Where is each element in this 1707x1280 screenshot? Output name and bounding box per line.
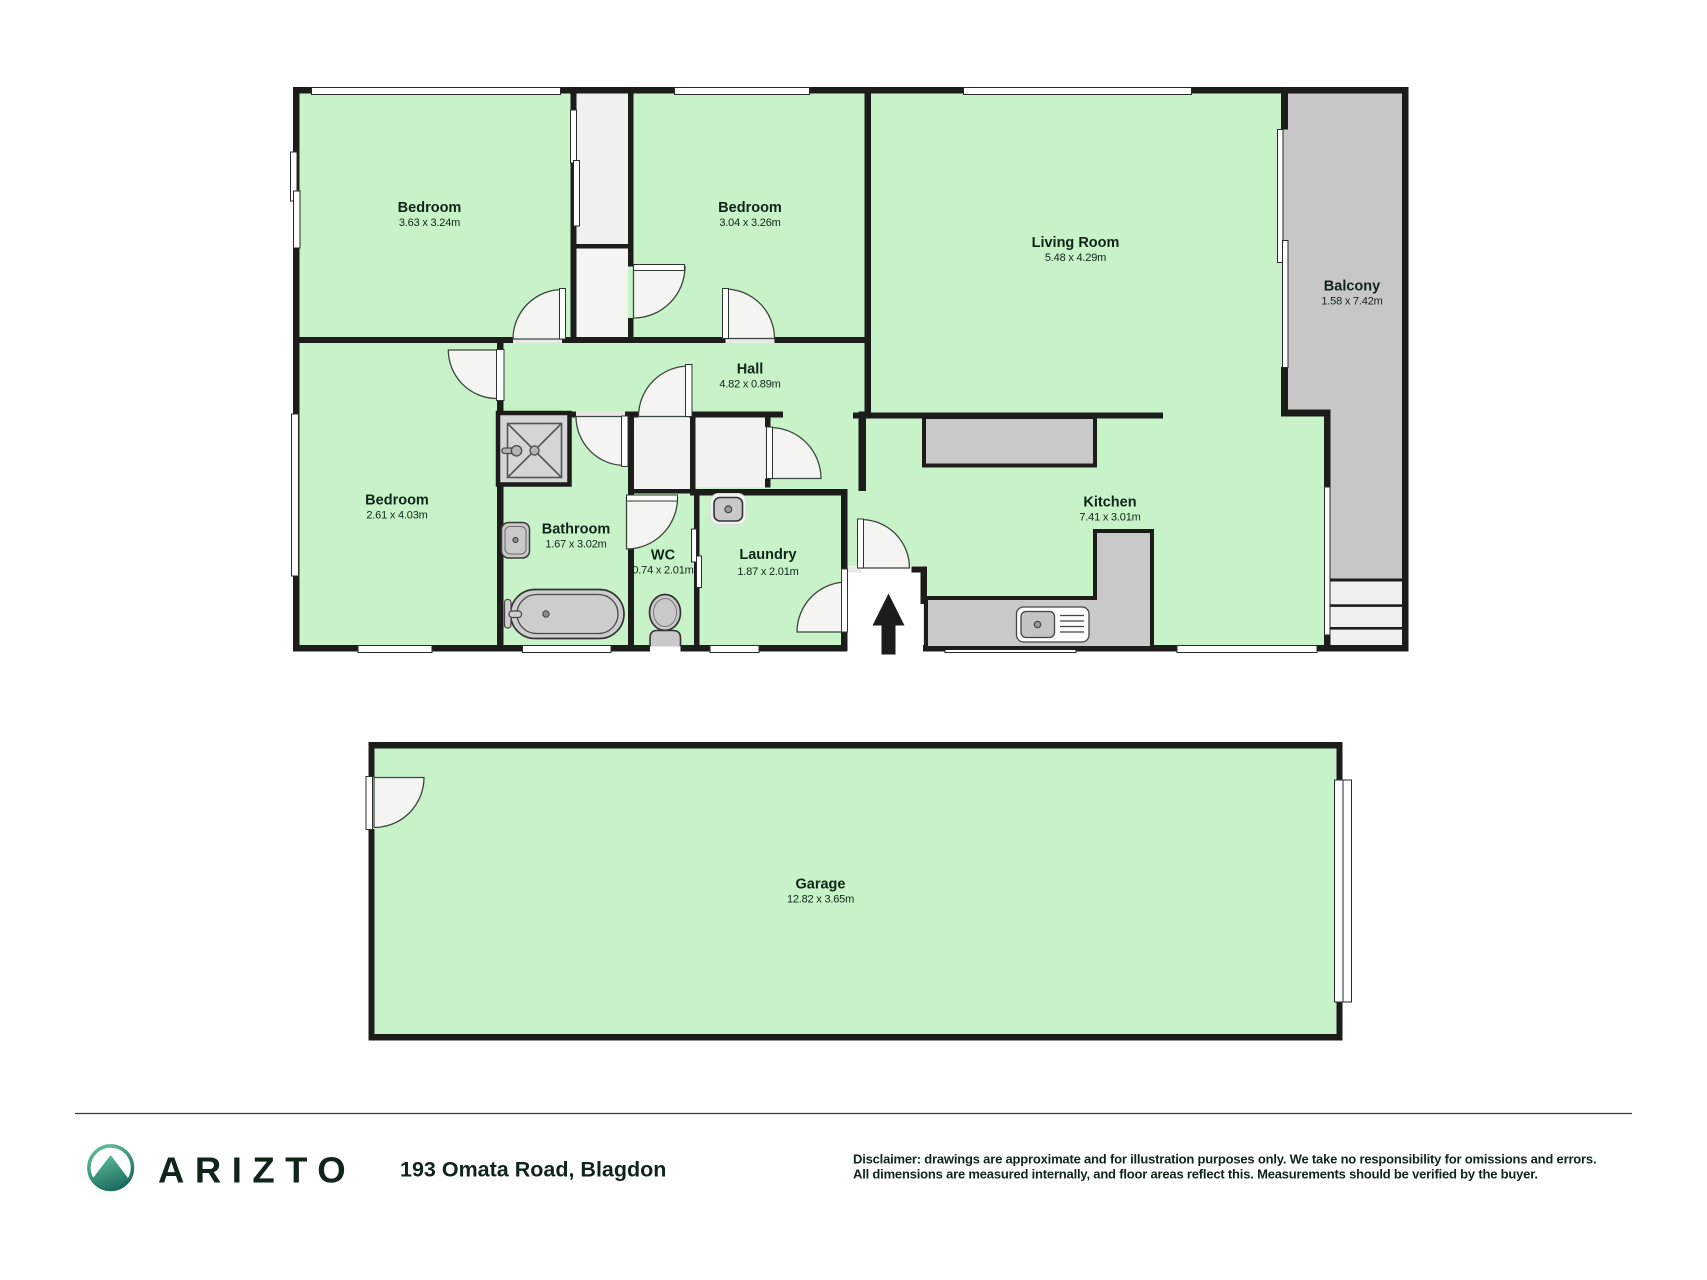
svg-text:All dimensions are measured in: All dimensions are measured internally, … [853, 1167, 1538, 1182]
svg-text:Bedroom: Bedroom [398, 200, 462, 216]
svg-text:193 Omata Road, Blagdon: 193 Omata Road, Blagdon [400, 1158, 666, 1182]
svg-text:WC: WC [651, 548, 676, 564]
svg-text:3.04 x 3.26m: 3.04 x 3.26m [719, 217, 780, 229]
svg-text:1.67 x 3.02m: 1.67 x 3.02m [545, 539, 606, 551]
svg-text:Living Room: Living Room [1032, 235, 1120, 251]
svg-text:Garage: Garage [796, 877, 846, 893]
svg-text:Bathroom: Bathroom [542, 522, 610, 538]
svg-text:Disclaimer: drawings are appro: Disclaimer: drawings are approximate and… [853, 1152, 1596, 1167]
svg-text:Laundry: Laundry [739, 547, 796, 563]
svg-text:1.58 x 7.42m: 1.58 x 7.42m [1321, 296, 1382, 308]
svg-text:1.87 x 2.01m: 1.87 x 2.01m [737, 566, 798, 578]
svg-text:ARIZTO: ARIZTO [158, 1150, 356, 1191]
svg-text:Balcony: Balcony [1324, 279, 1380, 295]
svg-text:Bedroom: Bedroom [365, 493, 429, 509]
svg-text:Bedroom: Bedroom [718, 200, 782, 216]
svg-text:0.74 x 2.01m: 0.74 x 2.01m [632, 565, 693, 577]
svg-text:4.82 x 0.89m: 4.82 x 0.89m [719, 379, 780, 391]
svg-text:5.48 x 4.29m: 5.48 x 4.29m [1045, 252, 1106, 264]
svg-text:Hall: Hall [737, 362, 764, 378]
svg-text:7.41 x 3.01m: 7.41 x 3.01m [1079, 512, 1140, 524]
svg-text:Kitchen: Kitchen [1083, 495, 1136, 511]
svg-text:2.61 x 4.03m: 2.61 x 4.03m [366, 510, 427, 522]
svg-text:12.82 x 3.65m: 12.82 x 3.65m [787, 894, 854, 906]
svg-text:3.63 x 3.24m: 3.63 x 3.24m [399, 217, 460, 229]
